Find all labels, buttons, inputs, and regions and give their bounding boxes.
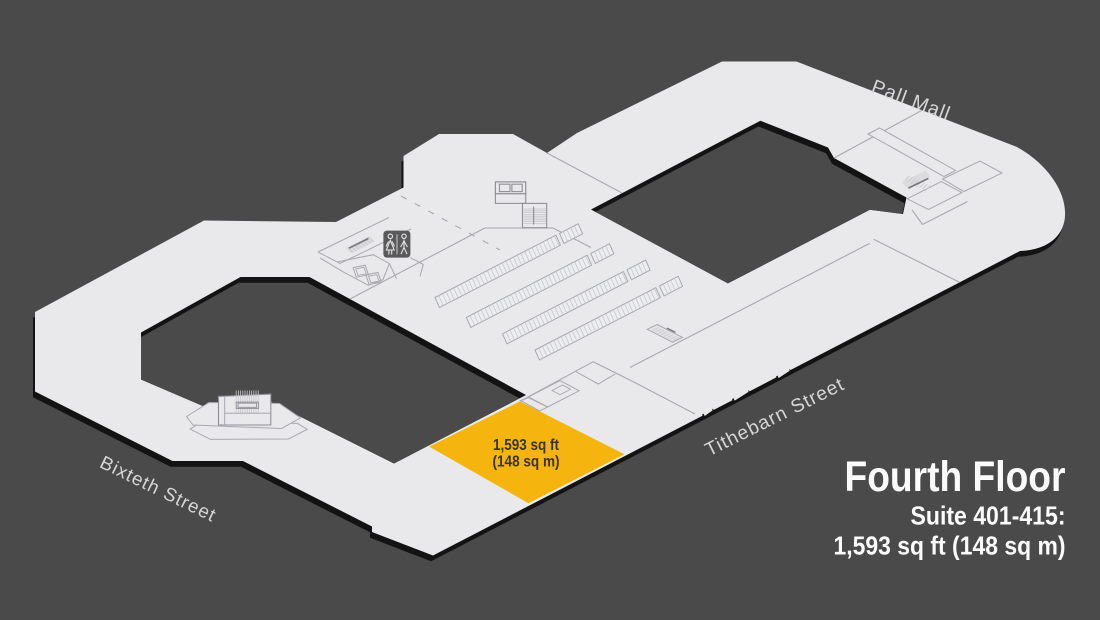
svg-text:(148 sq m): (148 sq m): [493, 454, 560, 471]
svg-text:1,593 sq ft (148 sq m): 1,593 sq ft (148 sq m): [834, 531, 1066, 561]
svg-text:Suite 401-415:: Suite 401-415:: [911, 501, 1066, 531]
svg-text:Fourth Floor: Fourth Floor: [845, 453, 1066, 501]
svg-text:1,593 sq ft: 1,593 sq ft: [493, 437, 559, 454]
